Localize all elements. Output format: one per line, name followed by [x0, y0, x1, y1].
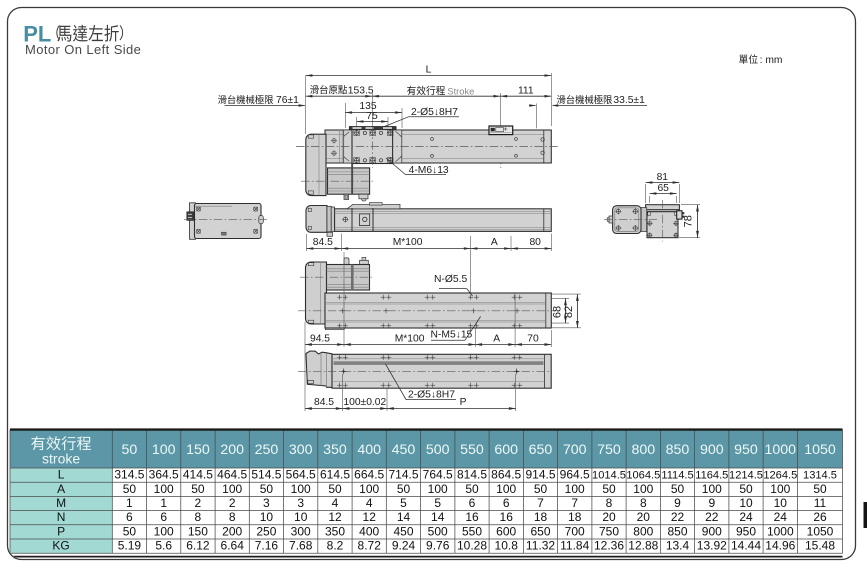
svg-text:12.88: 12.88 — [628, 539, 658, 553]
svg-text:100: 100 — [565, 482, 585, 496]
svg-text:500: 500 — [426, 442, 450, 458]
svg-text:10: 10 — [260, 510, 274, 524]
svg-text:13.92: 13.92 — [697, 539, 727, 553]
svg-text:10: 10 — [739, 496, 753, 510]
svg-text:800: 800 — [631, 442, 655, 458]
svg-text:900: 900 — [702, 524, 722, 538]
svg-text:10.8: 10.8 — [495, 539, 519, 553]
svg-text:76±1: 76±1 — [276, 95, 299, 106]
svg-text:16: 16 — [465, 510, 479, 524]
svg-text:13.4: 13.4 — [666, 539, 690, 553]
svg-text:14: 14 — [397, 510, 411, 524]
svg-text:1: 1 — [126, 496, 133, 510]
svg-text:84.5: 84.5 — [313, 237, 333, 248]
svg-text:50: 50 — [123, 524, 137, 538]
svg-text:1000: 1000 — [765, 442, 797, 458]
svg-text:900: 900 — [700, 442, 724, 458]
svg-text:10.28: 10.28 — [457, 539, 487, 553]
svg-text:KG: KG — [52, 539, 69, 553]
svg-text:850: 850 — [667, 524, 687, 538]
svg-text:80: 80 — [529, 237, 541, 248]
svg-text:A: A — [493, 333, 500, 344]
svg-text:6: 6 — [160, 510, 167, 524]
svg-text:8: 8 — [640, 496, 647, 510]
svg-text:100: 100 — [152, 442, 176, 458]
svg-text:6: 6 — [469, 496, 476, 510]
svg-text:250: 250 — [255, 442, 279, 458]
svg-text:100: 100 — [222, 482, 242, 496]
svg-text:1114.5: 1114.5 — [661, 470, 693, 482]
svg-text:4: 4 — [332, 496, 339, 510]
svg-text:18: 18 — [568, 510, 582, 524]
svg-text:A: A — [491, 237, 498, 248]
svg-text:514.5: 514.5 — [251, 468, 281, 482]
svg-text:100: 100 — [702, 482, 722, 496]
svg-text:500: 500 — [428, 524, 448, 538]
svg-text:750: 750 — [599, 524, 619, 538]
svg-text:15.48: 15.48 — [805, 539, 835, 553]
svg-text:84.5: 84.5 — [314, 397, 334, 408]
svg-text:100: 100 — [359, 482, 379, 496]
svg-text:50: 50 — [191, 482, 205, 496]
svg-text:100: 100 — [154, 482, 174, 496]
svg-text:600: 600 — [496, 524, 516, 538]
svg-text:24: 24 — [739, 510, 753, 524]
svg-text:100±0.02: 100±0.02 — [343, 397, 386, 408]
svg-text:P: P — [460, 397, 467, 408]
svg-text:1214.5: 1214.5 — [729, 470, 763, 482]
svg-text:400: 400 — [357, 442, 381, 458]
svg-text:3: 3 — [263, 496, 270, 510]
svg-text:650: 650 — [530, 524, 550, 538]
svg-text:1064.5: 1064.5 — [626, 470, 660, 482]
svg-text:50: 50 — [739, 482, 753, 496]
svg-text:22: 22 — [705, 510, 719, 524]
svg-text:550: 550 — [462, 524, 482, 538]
svg-text:12.36: 12.36 — [594, 539, 624, 553]
svg-text:14.44: 14.44 — [731, 539, 761, 553]
svg-text:950: 950 — [734, 442, 758, 458]
svg-text:10: 10 — [294, 510, 308, 524]
svg-text:26: 26 — [813, 510, 827, 524]
svg-text:2: 2 — [195, 496, 202, 510]
svg-text:M*100: M*100 — [395, 333, 425, 344]
svg-text:650: 650 — [529, 442, 553, 458]
svg-text:3: 3 — [297, 496, 304, 510]
svg-text:800: 800 — [633, 524, 653, 538]
svg-text:153.5: 153.5 — [348, 85, 374, 96]
svg-text:50: 50 — [602, 482, 616, 496]
svg-text:914.5: 914.5 — [525, 468, 555, 482]
svg-text:314.5: 314.5 — [114, 468, 144, 482]
svg-text:75: 75 — [366, 111, 378, 122]
svg-text:50: 50 — [534, 482, 548, 496]
svg-text:6.12: 6.12 — [186, 539, 210, 553]
svg-text:100: 100 — [496, 482, 516, 496]
svg-text:70: 70 — [527, 333, 539, 344]
svg-text:300: 300 — [289, 442, 313, 458]
svg-text:6.64: 6.64 — [221, 539, 245, 553]
svg-text:8: 8 — [606, 496, 613, 510]
svg-text:200: 200 — [220, 442, 244, 458]
svg-text:9: 9 — [708, 496, 715, 510]
svg-text:78: 78 — [683, 215, 695, 227]
svg-text:12: 12 — [328, 510, 342, 524]
svg-text:6: 6 — [503, 496, 510, 510]
svg-text:150: 150 — [186, 442, 210, 458]
svg-text:5.6: 5.6 — [155, 539, 172, 553]
svg-text:1: 1 — [160, 496, 167, 510]
svg-text:11.32: 11.32 — [526, 539, 555, 553]
svg-text:7.68: 7.68 — [289, 539, 313, 553]
svg-text:350: 350 — [323, 442, 347, 458]
svg-text:300: 300 — [291, 524, 311, 538]
svg-text:L: L — [426, 64, 432, 75]
svg-text:50: 50 — [328, 482, 342, 496]
svg-text:400: 400 — [359, 524, 379, 538]
svg-text:94.5: 94.5 — [310, 333, 330, 344]
svg-text:100: 100 — [291, 482, 311, 496]
svg-text:M: M — [56, 496, 66, 510]
svg-text:200: 200 — [222, 524, 242, 538]
svg-text:10: 10 — [774, 496, 788, 510]
svg-text:764.5: 764.5 — [423, 468, 453, 482]
svg-text:964.5: 964.5 — [560, 468, 590, 482]
svg-text:33.5±1: 33.5±1 — [613, 95, 645, 106]
svg-text:700: 700 — [565, 524, 585, 538]
svg-text:750: 750 — [597, 442, 621, 458]
svg-text:11.84: 11.84 — [560, 539, 589, 553]
svg-text:7: 7 — [571, 496, 578, 510]
svg-text:150: 150 — [188, 524, 208, 538]
svg-text:M*100: M*100 — [393, 237, 423, 248]
svg-text:5: 5 — [400, 496, 407, 510]
svg-text:1050: 1050 — [807, 524, 834, 538]
svg-text:1164.5: 1164.5 — [695, 470, 728, 482]
svg-text:Motor On Left Side: Motor On Left Side — [25, 42, 141, 57]
svg-text:5.19: 5.19 — [118, 539, 142, 553]
svg-text:20: 20 — [602, 510, 616, 524]
svg-text:: mm: : mm — [760, 55, 783, 66]
svg-text:364.5: 364.5 — [149, 468, 179, 482]
svg-text:82: 82 — [563, 306, 575, 318]
svg-text:7.16: 7.16 — [255, 539, 279, 553]
svg-text:950: 950 — [736, 524, 756, 538]
svg-text:2-Ø5↓8H7: 2-Ø5↓8H7 — [408, 389, 455, 400]
svg-text:100: 100 — [428, 482, 448, 496]
svg-text:P: P — [57, 524, 65, 538]
svg-text:7: 7 — [537, 496, 544, 510]
svg-text:A: A — [57, 482, 65, 496]
svg-text:600: 600 — [494, 442, 518, 458]
svg-text:N: N — [57, 510, 66, 524]
svg-text:250: 250 — [256, 524, 276, 538]
svg-text:50: 50 — [122, 442, 138, 458]
svg-text:714.5: 714.5 — [388, 468, 418, 482]
svg-text:50: 50 — [671, 482, 685, 496]
svg-text:22: 22 — [671, 510, 685, 524]
svg-text:N-Ø5.5: N-Ø5.5 — [434, 274, 467, 285]
svg-text:1314.5: 1314.5 — [803, 470, 837, 482]
svg-text:8: 8 — [195, 510, 202, 524]
svg-text:111: 111 — [518, 85, 534, 96]
svg-text:464.5: 464.5 — [217, 468, 247, 482]
svg-text:9.76: 9.76 — [426, 539, 450, 553]
svg-text:550: 550 — [460, 442, 484, 458]
svg-text:4: 4 — [366, 496, 373, 510]
svg-text:16: 16 — [500, 510, 514, 524]
svg-text:1050: 1050 — [804, 442, 836, 458]
svg-text:50: 50 — [123, 482, 137, 496]
svg-text:14.96: 14.96 — [765, 539, 795, 553]
svg-text:864.5: 864.5 — [491, 468, 521, 482]
svg-text:5: 5 — [434, 496, 441, 510]
svg-text:664.5: 664.5 — [354, 468, 384, 482]
svg-text:9.24: 9.24 — [392, 539, 416, 553]
svg-text:81: 81 — [657, 172, 669, 183]
svg-text:14: 14 — [431, 510, 445, 524]
svg-text:814.5: 814.5 — [457, 468, 487, 482]
svg-text:614.5: 614.5 — [320, 468, 350, 482]
svg-text:65: 65 — [657, 183, 669, 194]
svg-text:Stroke: Stroke — [447, 86, 474, 96]
svg-text:100: 100 — [633, 482, 653, 496]
svg-text:700: 700 — [563, 442, 587, 458]
svg-text:100: 100 — [770, 482, 790, 496]
svg-text:350: 350 — [325, 524, 345, 538]
svg-text:12: 12 — [363, 510, 377, 524]
svg-text:50: 50 — [465, 482, 479, 496]
svg-text:2-Ø5↓8H7: 2-Ø5↓8H7 — [411, 107, 458, 118]
svg-text:564.5: 564.5 — [286, 468, 316, 482]
svg-text:100: 100 — [154, 524, 174, 538]
svg-text:8.2: 8.2 — [327, 539, 344, 553]
svg-text:450: 450 — [393, 524, 413, 538]
svg-text:20: 20 — [637, 510, 651, 524]
svg-text:24: 24 — [774, 510, 788, 524]
svg-text:2: 2 — [229, 496, 236, 510]
svg-text:1000: 1000 — [767, 524, 794, 538]
svg-text:50: 50 — [397, 482, 411, 496]
svg-text:450: 450 — [392, 442, 416, 458]
svg-text:18: 18 — [534, 510, 548, 524]
svg-text:850: 850 — [666, 442, 690, 458]
svg-text:1014.5: 1014.5 — [592, 470, 626, 482]
svg-text:68: 68 — [551, 306, 563, 318]
svg-text:414.5: 414.5 — [183, 468, 213, 482]
svg-text:11: 11 — [814, 496, 827, 510]
svg-text:50: 50 — [260, 482, 274, 496]
svg-text:8: 8 — [229, 510, 236, 524]
svg-text:L: L — [58, 468, 65, 482]
svg-text:6: 6 — [126, 510, 133, 524]
svg-text:9: 9 — [674, 496, 681, 510]
svg-text:1264.5: 1264.5 — [763, 470, 797, 482]
svg-text:8.72: 8.72 — [358, 539, 382, 553]
svg-text:stroke: stroke — [42, 451, 80, 467]
svg-text:50: 50 — [813, 482, 827, 496]
